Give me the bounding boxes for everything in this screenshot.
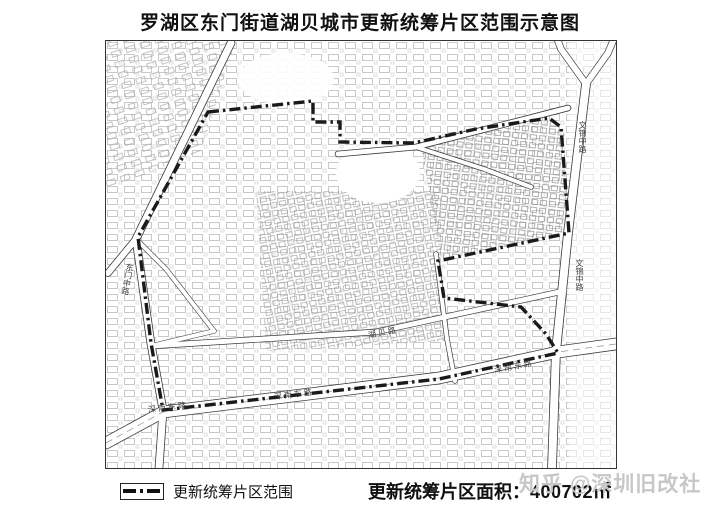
- page-title: 罗湖区东门街道湖贝城市更新统筹片区范围示意图: [0, 8, 720, 35]
- road-label-wenjin-south: 文锦中路: [575, 259, 583, 291]
- area-label: 更新统筹片区面积：: [368, 482, 530, 502]
- building-texture-village-mid: [256, 191, 446, 351]
- open-area-top: [238, 53, 334, 105]
- legend-label: 更新统筹片区范围: [173, 481, 293, 502]
- open-area-east-strip: [569, 41, 616, 468]
- page: 罗湖区东门街道湖贝城市更新统筹片区范围示意图: [0, 0, 720, 509]
- road-label-wenjin-north: 文锦中路: [578, 121, 586, 153]
- map-frame: 东门中路 文锦中路 文锦中路 深南东路 深南东路 深南东路 湖贝路: [105, 40, 617, 469]
- dash-dot-line-icon: [120, 483, 164, 500]
- watermark: 知乎 @深圳旧改社: [519, 468, 701, 498]
- legend: 更新统筹片区范围: [120, 481, 293, 502]
